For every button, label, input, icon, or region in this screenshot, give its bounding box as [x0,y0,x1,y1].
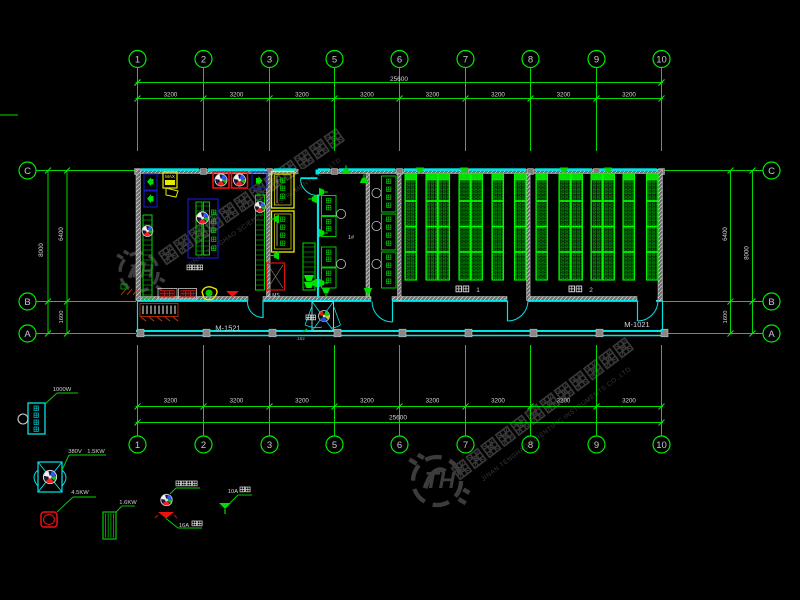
svg-text:2: 2 [201,440,206,451]
svg-text:9: 9 [594,54,599,65]
svg-text:3200: 3200 [622,398,636,405]
svg-text:4.5KW: 4.5KW [71,490,89,496]
svg-text:6: 6 [397,440,402,451]
svg-text:B: B [768,297,774,308]
svg-text:C: C [24,166,31,177]
svg-text:6400: 6400 [58,227,65,241]
svg-text:7: 7 [463,440,468,451]
svg-text:3200: 3200 [426,398,440,405]
svg-text:3200: 3200 [230,92,244,99]
svg-text:1.6KW: 1.6KW [119,500,137,506]
svg-text:A: A [24,329,31,340]
svg-text:1: 1 [135,440,140,451]
svg-text:1#: 1# [348,235,355,241]
svg-text:3200: 3200 [360,398,374,405]
svg-text:6: 6 [397,54,402,65]
svg-text:10: 10 [656,440,667,451]
svg-text:B: B [24,297,30,308]
svg-text:380V: 380V [68,449,82,455]
svg-text:3200: 3200 [164,92,178,99]
svg-text:162: 162 [297,336,305,341]
svg-text:7: 7 [463,54,468,65]
svg-text:MS: MS [272,293,280,299]
svg-text:1: 1 [476,287,480,294]
svg-text:3200: 3200 [426,92,440,99]
svg-text:3200: 3200 [360,92,374,99]
svg-text:C: C [768,166,775,177]
svg-text:M-1021: M-1021 [624,320,649,329]
svg-text:16A: 16A [179,523,189,529]
svg-text:8: 8 [528,440,533,451]
svg-text:2: 2 [589,287,593,294]
svg-text:A: A [768,329,775,340]
svg-text:2: 2 [201,54,206,65]
svg-text:8000: 8000 [38,243,45,257]
svg-text:1000W: 1000W [53,387,72,393]
svg-text:1600: 1600 [59,311,65,324]
svg-text:3200: 3200 [557,92,571,99]
svg-text:10: 10 [656,54,667,65]
svg-text:3200: 3200 [295,92,309,99]
svg-text:3200: 3200 [295,398,309,405]
svg-text:1.5KW: 1.5KW [87,449,105,455]
svg-text:5: 5 [332,440,337,451]
svg-text:1: 1 [135,54,140,65]
svg-text:3: 3 [267,54,272,65]
svg-text:9: 9 [594,440,599,451]
svg-text:3200: 3200 [230,398,244,405]
svg-text:3200: 3200 [491,92,505,99]
svg-text:6400: 6400 [722,227,729,241]
svg-text:8: 8 [528,54,533,65]
svg-text:3200: 3200 [164,398,178,405]
svg-text:3: 3 [267,440,272,451]
svg-text:8000: 8000 [744,246,751,260]
svg-text:3200: 3200 [622,92,636,99]
svg-text:TH: TH [425,467,456,493]
svg-text:M-1521: M-1521 [215,324,240,333]
svg-text:3200: 3200 [491,398,505,405]
svg-text:10A: 10A [228,489,238,495]
svg-text:25600: 25600 [389,415,407,422]
svg-text:MAX: MAX [165,174,175,179]
svg-text:3200: 3200 [557,398,571,405]
svg-text:5: 5 [332,54,337,65]
svg-text:25600: 25600 [390,76,408,83]
svg-text:1600: 1600 [723,311,729,324]
